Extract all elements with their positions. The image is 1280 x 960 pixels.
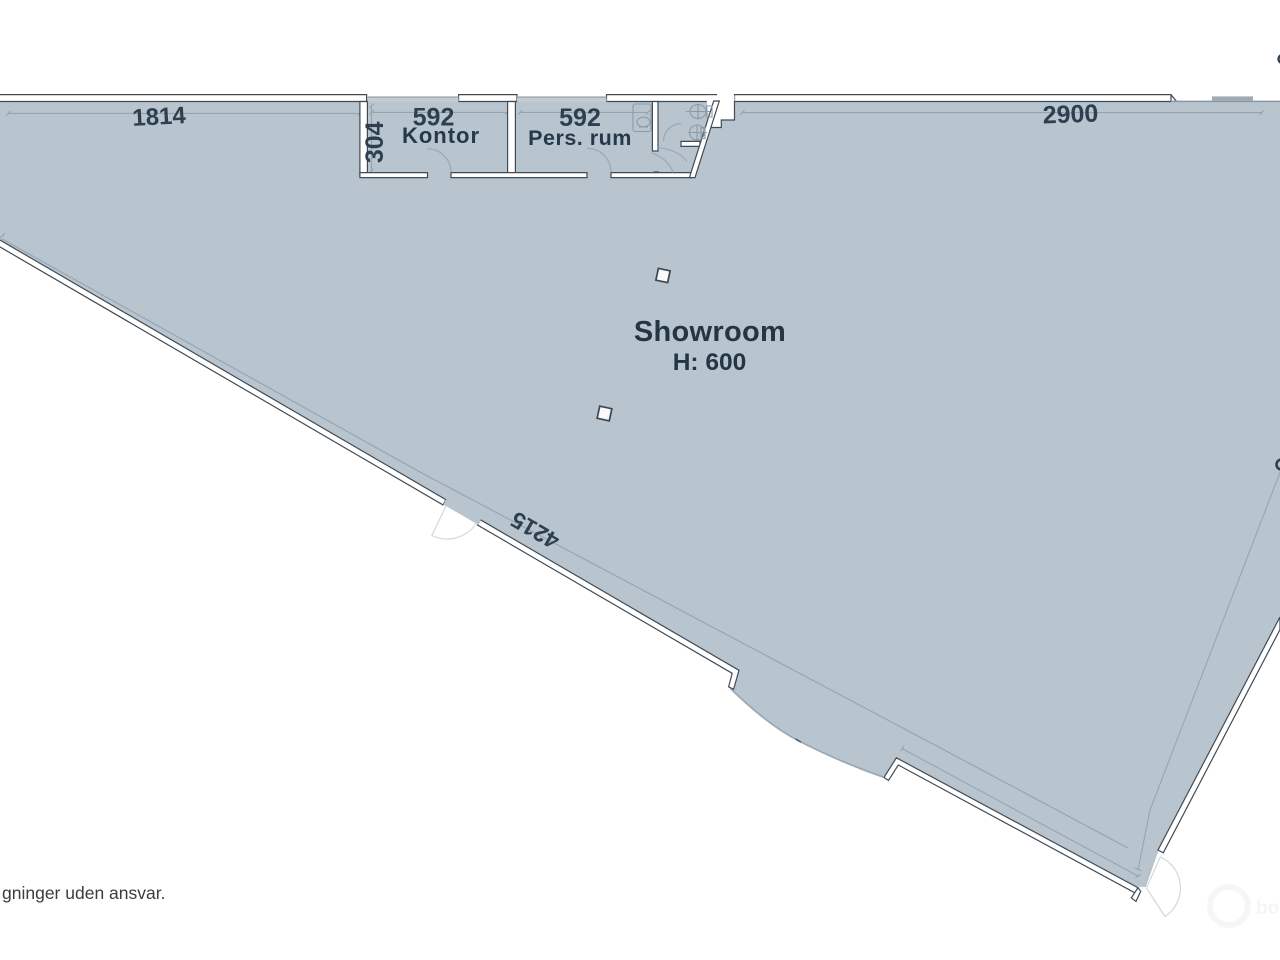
- svg-text:1814: 1814: [132, 102, 187, 132]
- svg-text:Kontor: Kontor: [402, 123, 480, 148]
- svg-text:Pers. rum: Pers. rum: [528, 126, 632, 150]
- svg-text:bolig: bolig: [1256, 898, 1280, 919]
- svg-text:H: 600: H: 600: [673, 349, 747, 376]
- svg-text:gninger uden ansvar.: gninger uden ansvar.: [2, 883, 165, 903]
- svg-text:2900: 2900: [1042, 100, 1099, 130]
- svg-text:304: 304: [361, 121, 389, 163]
- svg-text:Showroom: Showroom: [634, 316, 786, 348]
